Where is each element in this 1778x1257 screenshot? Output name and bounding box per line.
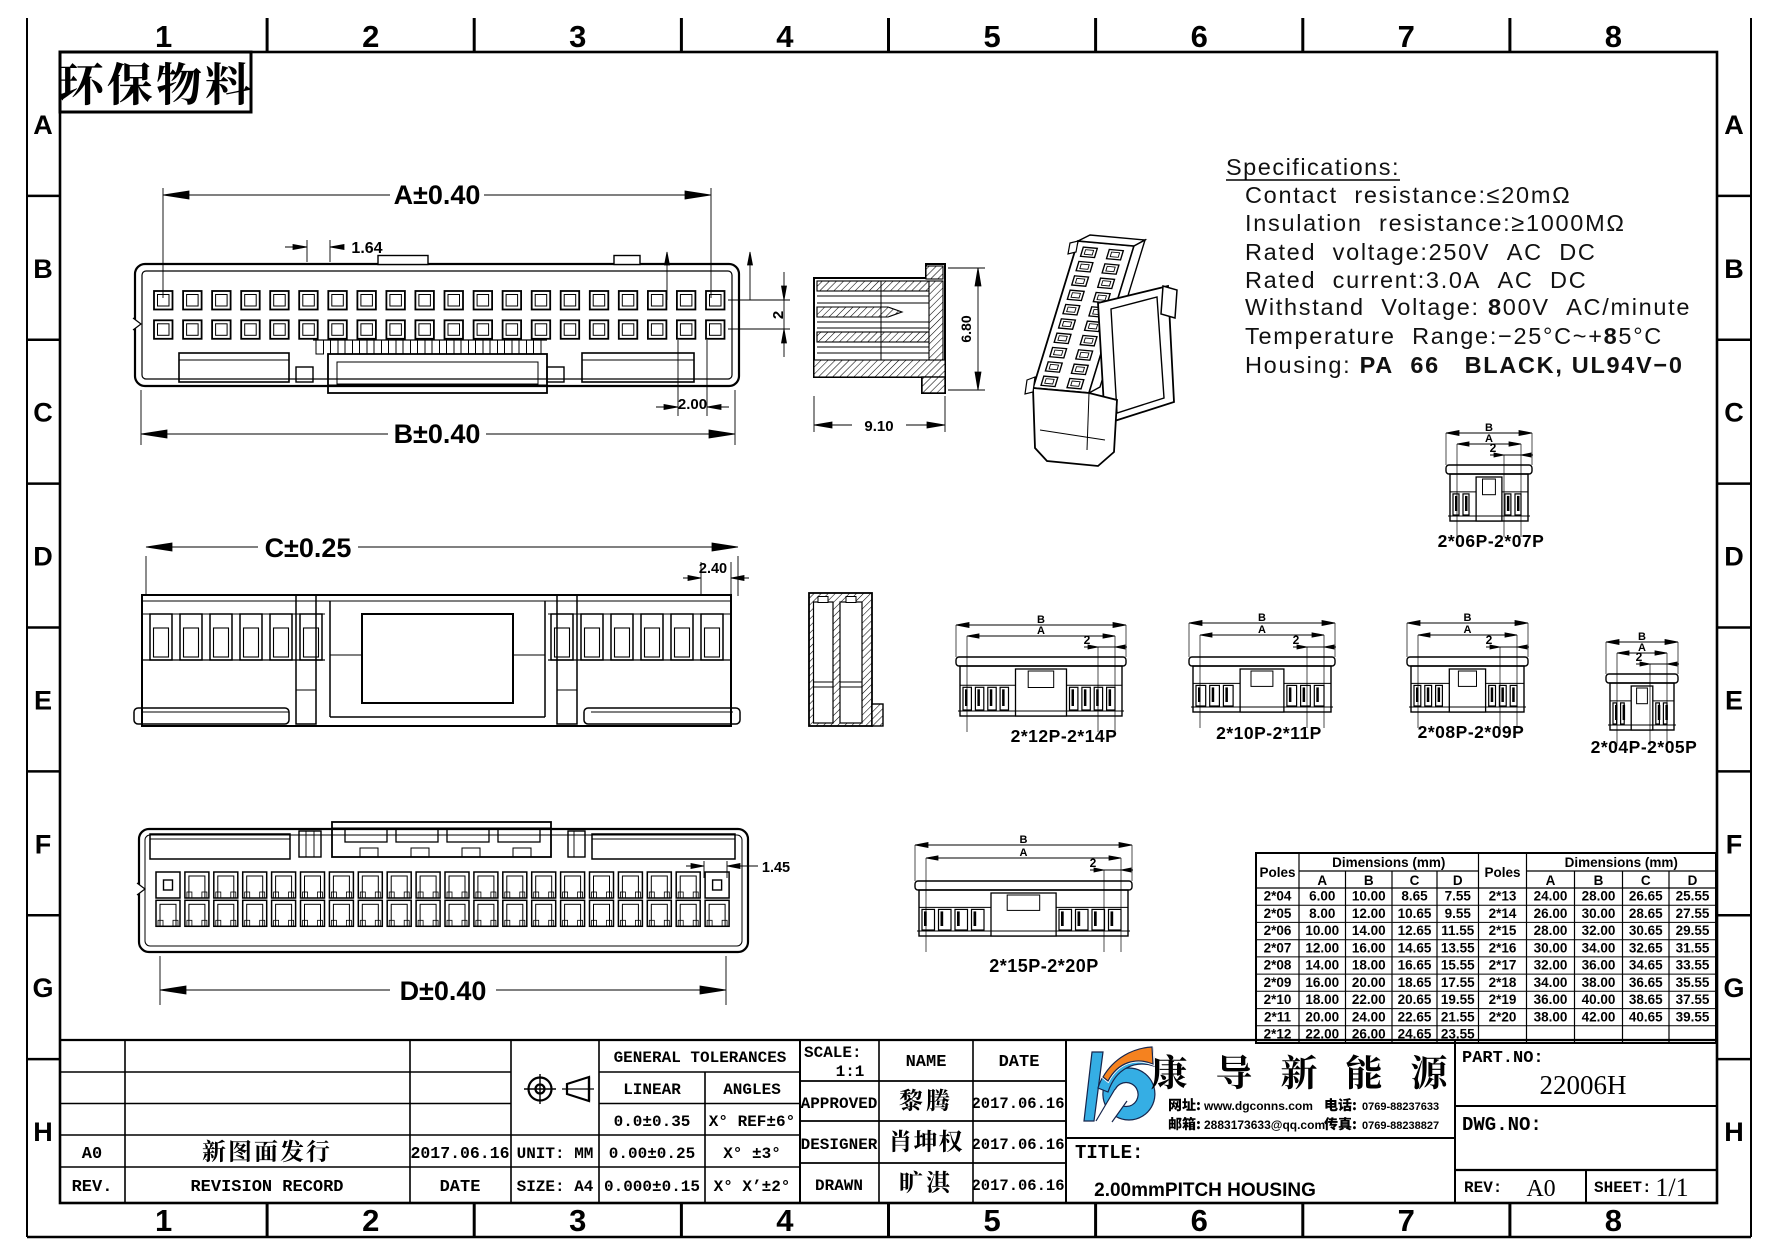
svg-text:SHEET:: SHEET: [1594, 1179, 1652, 1197]
svg-text:36.00: 36.00 [1534, 992, 1568, 1007]
svg-text:2*15P-2*20P: 2*15P-2*20P [989, 956, 1099, 976]
svg-text:C: C [33, 398, 53, 428]
svg-text:3: 3 [569, 1203, 586, 1238]
svg-text:D: D [1724, 542, 1744, 572]
svg-text:D±0.40: D±0.40 [400, 976, 487, 1006]
svg-text:15.55: 15.55 [1441, 958, 1475, 973]
svg-text:29.55: 29.55 [1676, 923, 1710, 938]
svg-text:6.80: 6.80 [958, 315, 974, 342]
svg-text:A: A [1464, 624, 1472, 636]
svg-text:2*07: 2*07 [1264, 940, 1292, 955]
svg-text:10.00: 10.00 [1305, 923, 1339, 938]
svg-text:G: G [32, 973, 53, 1003]
svg-text:17.55: 17.55 [1441, 975, 1475, 990]
svg-text:2*13: 2*13 [1489, 889, 1517, 904]
svg-text:0.000±0.15: 0.000±0.15 [604, 1178, 700, 1196]
svg-text:28.00: 28.00 [1582, 889, 1616, 904]
svg-text:B: B [1464, 612, 1472, 624]
svg-text:0.0±0.35: 0.0±0.35 [614, 1113, 691, 1131]
svg-text:Insulation resistance:≥1000MΩ: Insulation resistance:≥1000MΩ [1245, 210, 1626, 236]
svg-text:SCALE:: SCALE: [804, 1044, 862, 1062]
svg-text:32.65: 32.65 [1629, 940, 1663, 955]
svg-text:34.00: 34.00 [1582, 940, 1616, 955]
svg-text:A±0.40: A±0.40 [394, 180, 481, 210]
svg-text:2*10P-2*11P: 2*10P-2*11P [1216, 723, 1322, 743]
svg-text:G: G [1723, 973, 1744, 1003]
svg-text:12.65: 12.65 [1398, 923, 1432, 938]
svg-text:B: B [1594, 873, 1604, 888]
svg-text:DESIGNER: DESIGNER [801, 1136, 878, 1154]
svg-text:Contact resistance:≤20mΩ: Contact resistance:≤20mΩ [1245, 182, 1571, 208]
svg-text:8: 8 [1605, 19, 1622, 54]
svg-text:www.dgconns.com: www.dgconns.com [1203, 1099, 1313, 1113]
svg-text:2*08P-2*09P: 2*08P-2*09P [1418, 722, 1525, 742]
svg-text:2: 2 [770, 311, 787, 319]
svg-text:22.00: 22.00 [1352, 992, 1386, 1007]
svg-text:REV:: REV: [1464, 1179, 1502, 1197]
svg-text:NAME: NAME [906, 1053, 947, 1072]
svg-text:4: 4 [776, 1203, 794, 1238]
svg-text:8: 8 [1605, 1203, 1622, 1238]
svg-text:10.65: 10.65 [1398, 906, 1432, 921]
svg-text:D: D [1688, 873, 1698, 888]
svg-text:40.65: 40.65 [1629, 1009, 1663, 1024]
svg-text:DATE: DATE [440, 1178, 481, 1197]
svg-text:2*06: 2*06 [1264, 923, 1292, 938]
svg-text:2*12P-2*14P: 2*12P-2*14P [1011, 726, 1118, 746]
svg-text:2*05: 2*05 [1264, 906, 1292, 921]
svg-text:2*04: 2*04 [1264, 889, 1292, 904]
svg-text:4: 4 [776, 19, 794, 54]
svg-text:D: D [1453, 873, 1463, 888]
svg-text:1: 1 [155, 19, 172, 54]
svg-text:C: C [1724, 398, 1744, 428]
svg-text:D: D [33, 542, 53, 572]
svg-text:7: 7 [1398, 19, 1415, 54]
svg-text:REVISION RECORD: REVISION RECORD [190, 1178, 343, 1197]
svg-text:11.55: 11.55 [1441, 923, 1475, 938]
svg-text:12.00: 12.00 [1352, 906, 1386, 921]
svg-text:2: 2 [1293, 633, 1300, 647]
svg-text:2*10: 2*10 [1264, 992, 1292, 1007]
svg-text:1: 1 [155, 1203, 172, 1238]
svg-text:2*06P-2*07P: 2*06P-2*07P [1438, 531, 1545, 551]
svg-text:A: A [1317, 873, 1327, 888]
svg-text:A0: A0 [1526, 1176, 1555, 1202]
svg-text:SIZE: A4: SIZE: A4 [517, 1178, 594, 1196]
svg-text:32.00: 32.00 [1534, 958, 1568, 973]
svg-text:2*19: 2*19 [1489, 992, 1517, 1007]
svg-text:32.00: 32.00 [1582, 923, 1616, 938]
svg-text:5: 5 [983, 19, 1000, 54]
svg-text:C: C [1641, 873, 1651, 888]
svg-text:B: B [1724, 254, 1744, 284]
svg-text:GENERAL TOLERANCES: GENERAL TOLERANCES [614, 1049, 787, 1067]
svg-text:39.55: 39.55 [1676, 1009, 1710, 1024]
svg-text:PART.NO:: PART.NO: [1462, 1049, 1544, 1068]
svg-text:2017.06.16: 2017.06.16 [971, 1177, 1064, 1195]
svg-text:REV.: REV. [72, 1178, 113, 1197]
svg-text:2.40: 2.40 [699, 561, 727, 577]
svg-text:DRAWN: DRAWN [815, 1177, 863, 1195]
svg-text:20.65: 20.65 [1398, 992, 1432, 1007]
svg-text:21.55: 21.55 [1441, 1009, 1475, 1024]
svg-text:APPROVED: APPROVED [801, 1095, 878, 1113]
svg-text:2: 2 [1486, 633, 1493, 647]
svg-text:3: 3 [569, 19, 586, 54]
svg-text:X° X’±2°: X° X’±2° [714, 1178, 791, 1196]
svg-text:40.00: 40.00 [1582, 992, 1616, 1007]
svg-text:C±0.25: C±0.25 [265, 533, 352, 563]
svg-text:8.00: 8.00 [1309, 906, 1335, 921]
svg-text:31.55: 31.55 [1676, 940, 1710, 955]
svg-text:34.65: 34.65 [1629, 958, 1663, 973]
svg-text:1.64: 1.64 [351, 240, 382, 257]
svg-text:Temperature Range:−25°C~+85°C: Temperature Range:−25°C~+85°C [1245, 323, 1663, 349]
svg-text:1:1: 1:1 [836, 1063, 865, 1081]
svg-text:9.55: 9.55 [1445, 906, 1472, 921]
svg-text:7: 7 [1398, 1203, 1415, 1238]
svg-text:TITLE:: TITLE: [1075, 1142, 1143, 1164]
svg-text:12.00: 12.00 [1305, 940, 1339, 955]
svg-text:2: 2 [1090, 856, 1097, 870]
svg-text:24.00: 24.00 [1352, 1009, 1386, 1024]
svg-text:F: F [1726, 829, 1743, 859]
svg-text:B: B [1364, 873, 1374, 888]
svg-text:28.65: 28.65 [1629, 906, 1663, 921]
svg-text:Poles: Poles [1484, 865, 1520, 880]
svg-text:E: E [1725, 685, 1743, 715]
svg-text:9.10: 9.10 [864, 418, 893, 435]
svg-text:18.00: 18.00 [1352, 958, 1386, 973]
svg-text:2.00mmPITCH HOUSING: 2.00mmPITCH HOUSING [1094, 1180, 1316, 1201]
svg-text:2*16: 2*16 [1489, 940, 1517, 955]
svg-text:20.00: 20.00 [1305, 1009, 1339, 1024]
svg-text:33.55: 33.55 [1676, 958, 1710, 973]
svg-text:H: H [33, 1117, 53, 1147]
svg-text:X° ±3°: X° ±3° [723, 1145, 781, 1163]
svg-text:19.55: 19.55 [1441, 992, 1475, 1007]
svg-text:LINEAR: LINEAR [623, 1081, 681, 1099]
svg-text:B: B [1258, 612, 1266, 624]
svg-text:2017.06.16: 2017.06.16 [410, 1144, 509, 1163]
svg-text:26.00: 26.00 [1534, 906, 1568, 921]
svg-text:22006H: 22006H [1540, 1070, 1627, 1100]
svg-text:13.55: 13.55 [1441, 940, 1475, 955]
svg-text:6: 6 [1191, 19, 1208, 54]
svg-text:6.00: 6.00 [1309, 889, 1335, 904]
svg-text:2*20: 2*20 [1489, 1009, 1517, 1024]
svg-text:X° REF±6°: X° REF±6° [709, 1113, 795, 1131]
svg-text:42.00: 42.00 [1582, 1009, 1616, 1024]
svg-text:25.55: 25.55 [1676, 889, 1710, 904]
svg-text:30.00: 30.00 [1534, 940, 1568, 955]
svg-text:0769-88238827: 0769-88238827 [1362, 1120, 1439, 1132]
svg-text:2: 2 [1084, 633, 1091, 647]
svg-text:A: A [1258, 624, 1266, 636]
svg-text:B: B [1020, 834, 1028, 846]
svg-text:36.65: 36.65 [1629, 975, 1663, 990]
svg-text:36.00: 36.00 [1582, 958, 1616, 973]
svg-text:34.00: 34.00 [1534, 975, 1568, 990]
svg-text:38.00: 38.00 [1534, 1009, 1568, 1024]
svg-text:2883173633@qq.com: 2883173633@qq.com [1204, 1118, 1325, 1132]
svg-text:18.00: 18.00 [1305, 992, 1339, 1007]
svg-text:ANGLES: ANGLES [723, 1081, 781, 1099]
svg-text:E: E [34, 685, 52, 715]
svg-text:14.00: 14.00 [1352, 923, 1386, 938]
svg-text:C: C [1410, 873, 1420, 888]
svg-text:UNIT: MM: UNIT: MM [517, 1145, 594, 1163]
svg-text:2*11: 2*11 [1264, 1009, 1292, 1024]
svg-text:2*18: 2*18 [1489, 975, 1517, 990]
svg-text:Withstand Voltage: 800V AC/m: Withstand Voltage: 800V AC/minute [1245, 294, 1691, 320]
svg-text:Poles: Poles [1259, 865, 1295, 880]
svg-text:2017.06.16: 2017.06.16 [971, 1095, 1064, 1113]
svg-text:Rated voltage:250V AC DC: Rated voltage:250V AC DC [1245, 239, 1597, 265]
svg-text:A: A [1037, 625, 1045, 637]
svg-text:2*04P-2*05P: 2*04P-2*05P [1591, 737, 1698, 757]
svg-text:14.00: 14.00 [1305, 958, 1339, 973]
svg-text:2: 2 [362, 19, 379, 54]
svg-text:A0: A0 [82, 1145, 102, 1164]
svg-text:27.55: 27.55 [1676, 906, 1710, 921]
svg-text:A: A [1546, 873, 1556, 888]
svg-text:B±0.40: B±0.40 [394, 419, 481, 449]
svg-text:10.00: 10.00 [1352, 889, 1386, 904]
svg-text:26.65: 26.65 [1629, 889, 1663, 904]
svg-text:Dimensions (mm): Dimensions (mm) [1332, 855, 1445, 870]
svg-text:DATE: DATE [999, 1053, 1040, 1072]
svg-text:0.00±0.25: 0.00±0.25 [609, 1145, 695, 1163]
svg-text:35.55: 35.55 [1676, 975, 1710, 990]
svg-text:28.00: 28.00 [1534, 923, 1568, 938]
svg-text:Specifications:: Specifications: [1226, 154, 1400, 180]
svg-text:24.00: 24.00 [1534, 889, 1568, 904]
svg-text:2017.06.16: 2017.06.16 [971, 1136, 1064, 1154]
svg-text:14.65: 14.65 [1398, 940, 1432, 955]
svg-text:1.45: 1.45 [762, 860, 790, 876]
svg-text:2*17: 2*17 [1489, 958, 1517, 973]
svg-text:20.00: 20.00 [1352, 975, 1386, 990]
svg-text:22.65: 22.65 [1398, 1009, 1432, 1024]
svg-text:DWG.NO:: DWG.NO: [1462, 1114, 1542, 1136]
svg-text:6: 6 [1191, 1203, 1208, 1238]
svg-text:A: A [1724, 110, 1744, 140]
svg-text:38.00: 38.00 [1582, 975, 1616, 990]
svg-text:37.55: 37.55 [1676, 992, 1710, 1007]
svg-text:18.65: 18.65 [1398, 975, 1432, 990]
svg-text:2*09: 2*09 [1264, 975, 1292, 990]
svg-text:2*15: 2*15 [1489, 923, 1517, 938]
svg-text:38.65: 38.65 [1629, 992, 1663, 1007]
svg-text:F: F [35, 829, 52, 859]
svg-text:2.00: 2.00 [678, 396, 707, 413]
svg-text:B: B [33, 254, 53, 284]
svg-text:2*08: 2*08 [1264, 958, 1292, 973]
svg-text:A: A [1020, 847, 1028, 859]
svg-text:Rated current:3.0A AC DC: Rated current:3.0A AC DC [1245, 267, 1587, 293]
svg-text:2: 2 [1490, 441, 1497, 455]
svg-text:2: 2 [362, 1203, 379, 1238]
svg-text:1/1: 1/1 [1655, 1173, 1688, 1202]
svg-text:7.55: 7.55 [1445, 889, 1472, 904]
svg-text:A: A [33, 110, 53, 140]
svg-text:Dimensions (mm): Dimensions (mm) [1565, 855, 1678, 870]
svg-text:16.00: 16.00 [1305, 975, 1339, 990]
svg-text:30.00: 30.00 [1582, 906, 1616, 921]
svg-text:0769-88237633: 0769-88237633 [1362, 1101, 1439, 1113]
svg-text:H: H [1724, 1117, 1744, 1147]
svg-text:16.65: 16.65 [1398, 958, 1432, 973]
svg-text:16.00: 16.00 [1352, 940, 1386, 955]
svg-text:30.65: 30.65 [1629, 923, 1663, 938]
svg-text:5: 5 [983, 1203, 1000, 1238]
svg-text:8.65: 8.65 [1401, 889, 1428, 904]
svg-text:Housing: PA 66 BLACK, UL94V: Housing: PA 66 BLACK, UL94V−0 [1245, 352, 1684, 378]
svg-text:2: 2 [1636, 650, 1643, 664]
svg-text:2*14: 2*14 [1489, 906, 1517, 921]
